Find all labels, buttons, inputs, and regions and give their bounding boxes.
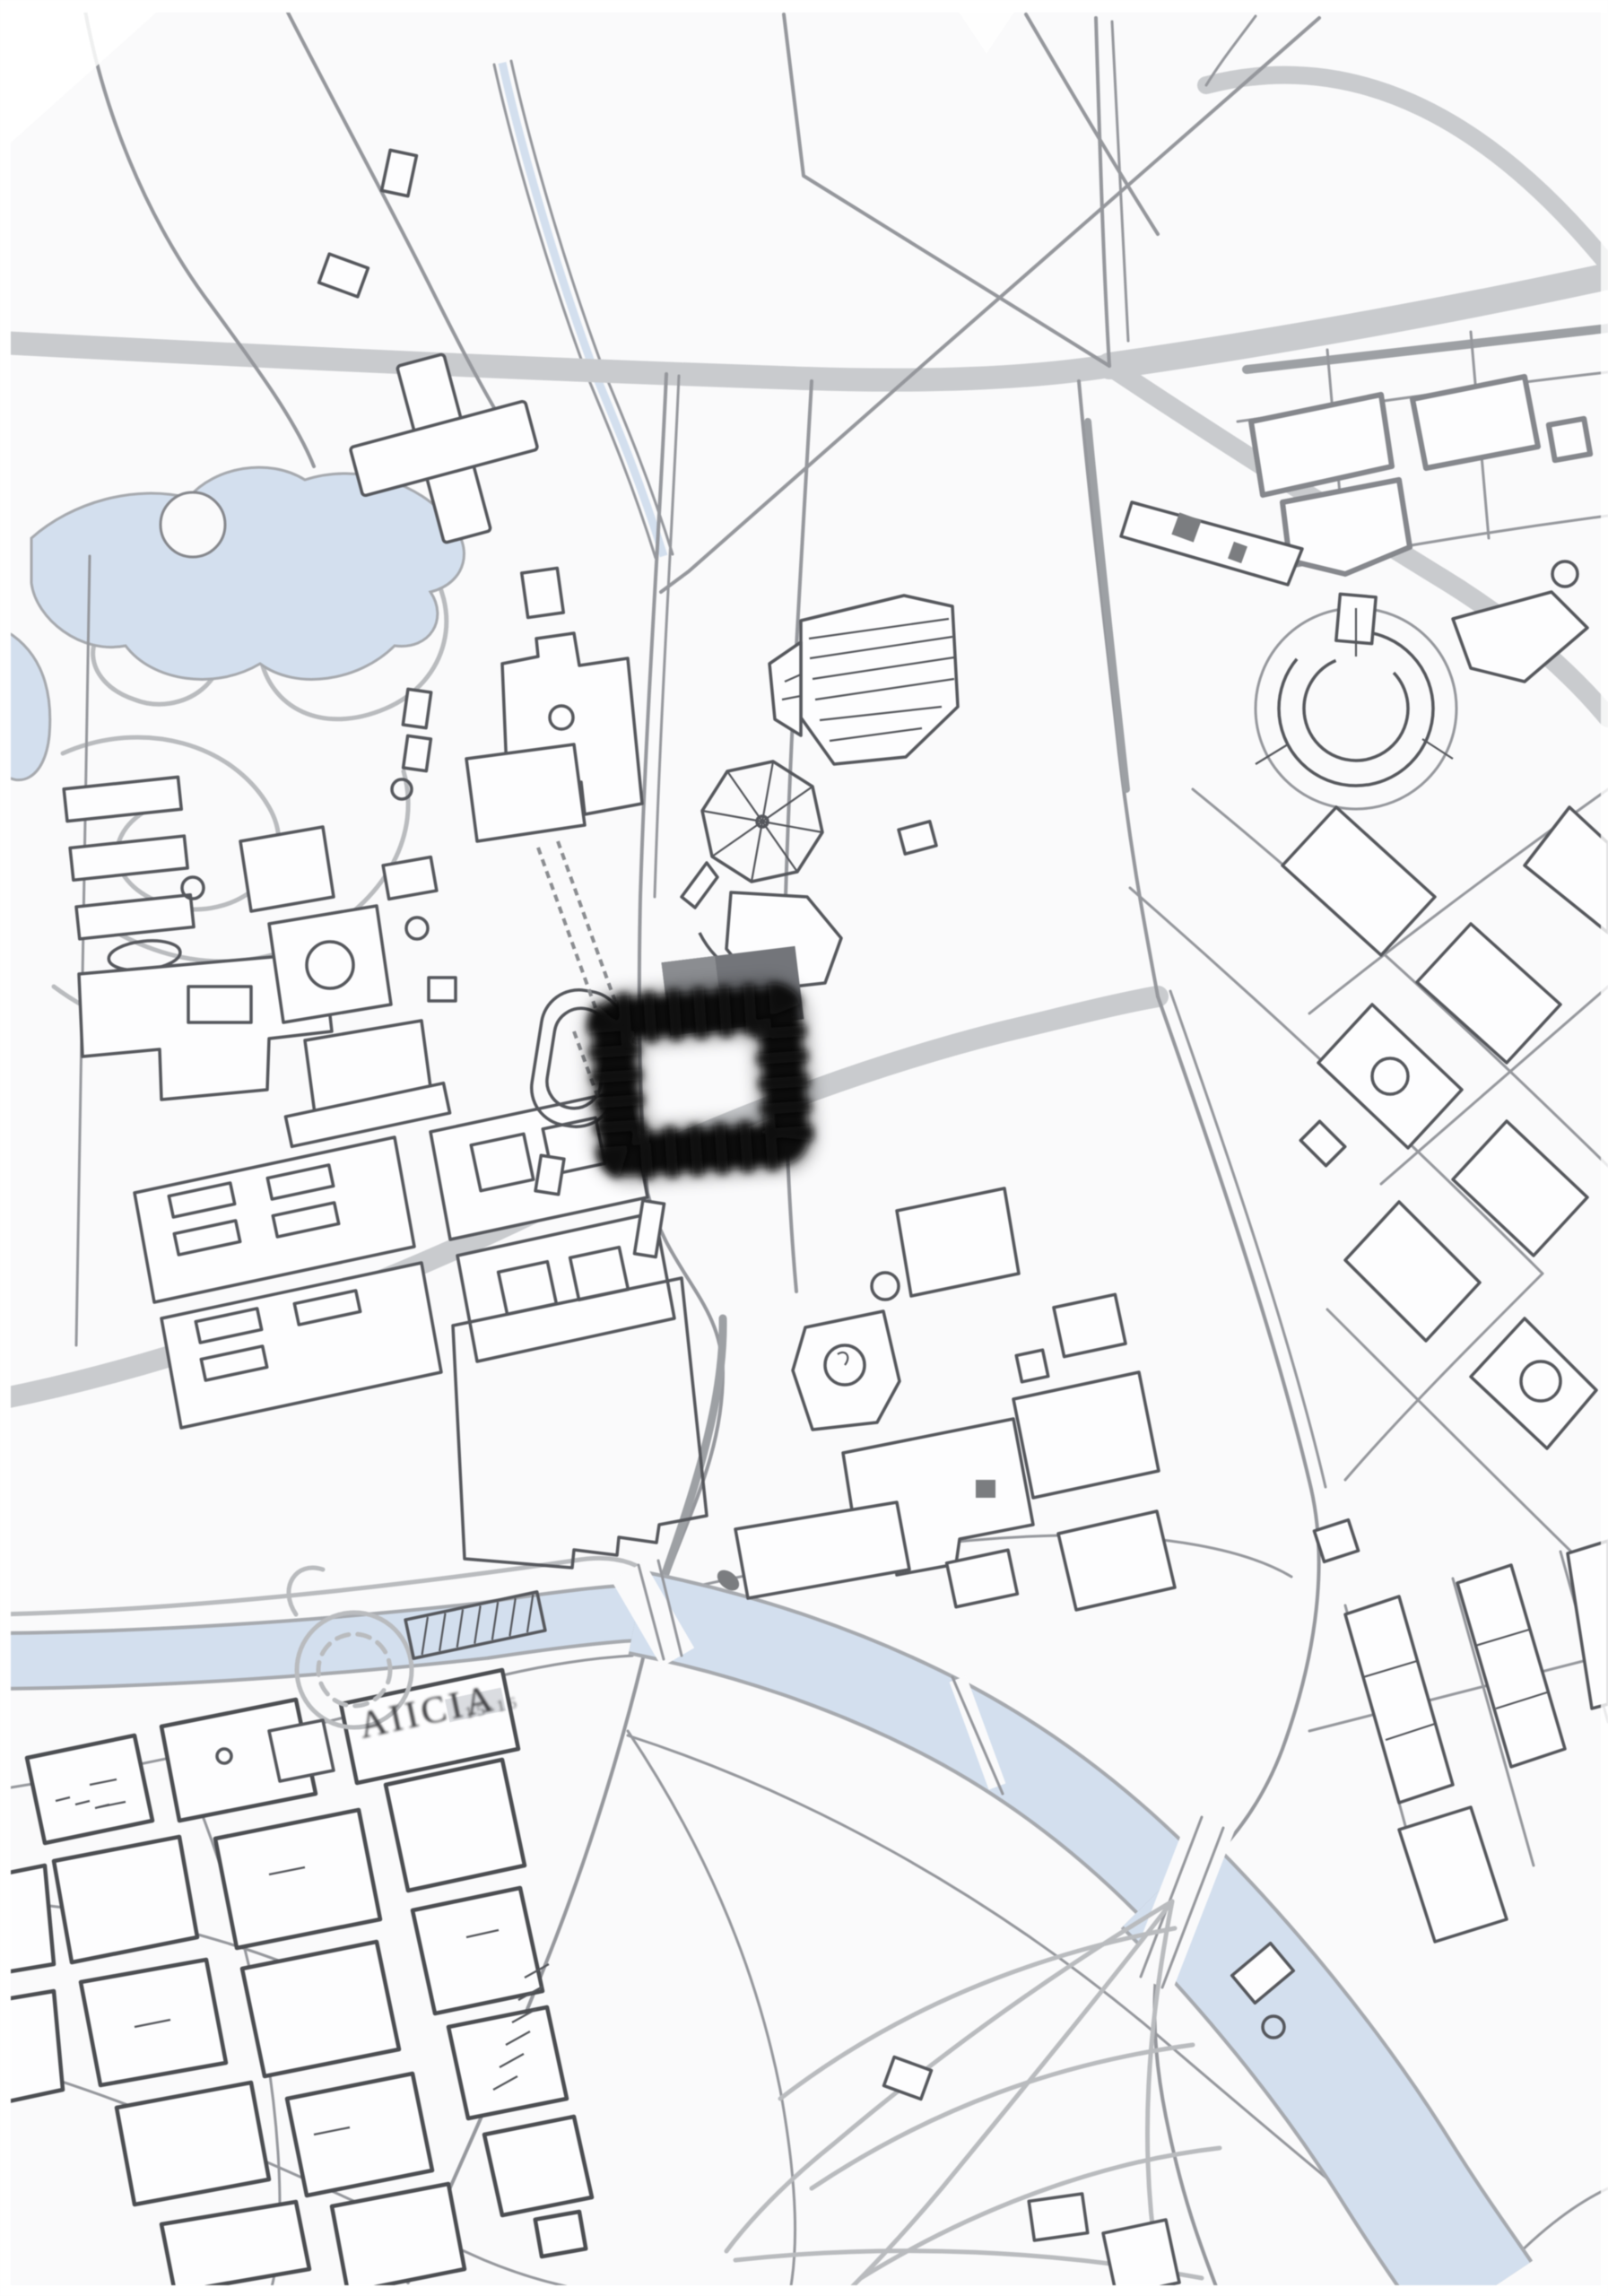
paper-edge-top [0,0,1608,13]
dome-circle [182,877,204,899]
building-footprint [735,1502,909,1598]
city-block [1453,1121,1587,1256]
paper-edge-right [1601,0,1608,2296]
circular-plaza [1256,594,1456,809]
paper-corner-wedge [0,0,170,152]
street [661,18,1319,592]
palace-wing [70,836,187,880]
building-footprint [1058,1511,1175,1610]
dome-circle [406,918,428,939]
city-block [1471,1318,1596,1448]
street [1026,14,1158,234]
paper-edge-bottom [0,2285,1608,2296]
dome-circle [1552,561,1578,587]
building-footprint [1013,1372,1159,1498]
building-footprint [535,1155,564,1195]
arc-road [1206,75,1608,265]
building-footprint [1300,1121,1344,1165]
building-footprint [1314,1520,1358,1562]
building-footprint [429,978,456,1001]
highlighted-building-group [613,946,804,1155]
canal-bank [511,61,673,554]
wheel-spokes [702,761,822,882]
street [1096,18,1109,366]
building-footprint [1103,2220,1179,2296]
old-town-block [161,2202,309,2292]
street [85,11,314,466]
building-footprint [383,857,437,900]
city-map[interactable]: AIICIA 15·16 [0,0,1608,2296]
hospital-block [240,827,334,911]
building-footprint [382,150,417,196]
highlighted-building-marker[interactable] [613,1008,788,1156]
old-town-block [413,1888,543,2013]
old-town-block [484,2117,592,2215]
building-footprint [319,254,369,297]
building-footprint [403,689,430,727]
city-block [1251,395,1392,495]
city-block [1318,1004,1462,1148]
park-pond [31,467,464,679]
church-building [793,1311,900,1430]
street [784,14,1109,366]
palace-wing [64,777,181,821]
building-footprint [535,2212,587,2257]
building-footprint [466,744,585,841]
monument-circle [872,1273,899,1300]
building-footprint [1399,1807,1507,1942]
old-town-block [287,2074,432,2196]
street [1309,1655,1608,1731]
building-footprint [884,2057,932,2100]
city-block [1412,377,1538,468]
avenue-twin [1170,991,1326,1487]
flatiron-building [1121,502,1302,585]
old-town-block [27,1735,152,1843]
old-town-block [215,1810,380,1948]
court-building [471,1134,534,1190]
map-canvas[interactable]: AIICIA 15·16 [0,0,1608,2296]
building-footprint [269,1720,334,1781]
city-block [1345,1202,1480,1341]
plaza-building-inner [1304,657,1408,761]
palace-wing [76,895,194,939]
rotunda-stem [682,863,717,908]
park-alley [780,1928,1175,2099]
street [655,376,679,897]
old-town-block [242,1942,399,2076]
pond-peninsula [161,492,225,557]
inner-court-dark [976,1480,995,1498]
old-town-block [54,1837,197,1962]
building-footprint [1054,1294,1126,1356]
long-block [1457,1565,1565,1767]
building-footprint [404,735,431,770]
hospital-block [269,906,391,1022]
fan-hall-apse [769,642,801,735]
building-footprint [522,568,564,617]
building-footprint [1029,2194,1088,2240]
street [1327,1309,1608,1587]
old-town-block [117,2083,269,2205]
city-block [1525,807,1608,933]
river-segment-east [1166,1883,1480,2296]
city-block [1417,924,1560,1063]
street [76,556,90,1345]
paper-corner-wedge [951,0,1022,54]
street-median [1088,422,1126,789]
building-footprint [1016,1350,1048,1382]
building-footprint [897,1188,1019,1296]
street [628,1731,795,2296]
building-footprint [899,822,936,854]
old-town-block [386,1760,525,1891]
city-block [1549,419,1590,460]
paper-edge-left [0,0,11,2296]
